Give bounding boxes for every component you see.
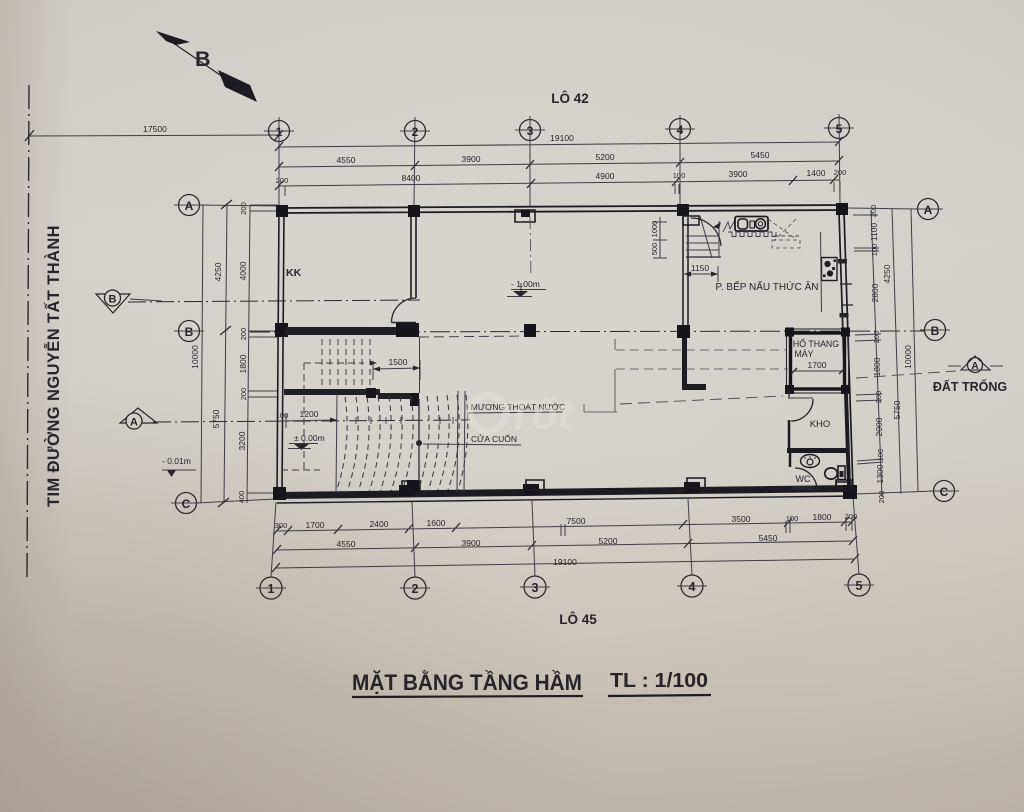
svg-text:1: 1 — [276, 125, 283, 139]
svg-text:WC: WC — [796, 474, 811, 484]
svg-text:5: 5 — [856, 579, 863, 593]
svg-text:5750: 5750 — [892, 400, 902, 419]
svg-text:300: 300 — [275, 521, 288, 530]
svg-text:2: 2 — [412, 582, 419, 596]
svg-text:HỐ THANG: HỐ THANG — [793, 338, 839, 349]
svg-text:400: 400 — [237, 491, 246, 504]
svg-text:2800: 2800 — [870, 283, 880, 302]
svg-text:4550: 4550 — [337, 155, 356, 165]
svg-text:A: A — [924, 203, 933, 217]
svg-text:A: A — [971, 361, 978, 372]
svg-text:1400: 1400 — [807, 168, 826, 178]
svg-text:200: 200 — [239, 388, 248, 401]
svg-text:MÁY: MÁY — [794, 349, 813, 359]
svg-text:17500: 17500 — [143, 124, 167, 134]
svg-text:4: 4 — [677, 123, 684, 137]
svg-text:1000: 1000 — [650, 221, 659, 238]
svg-text:1100: 1100 — [869, 223, 879, 242]
svg-text:100: 100 — [276, 411, 289, 420]
svg-text:200: 200 — [239, 202, 248, 215]
svg-text:4250: 4250 — [882, 264, 892, 283]
svg-text:1150: 1150 — [691, 263, 710, 273]
svg-text:1700: 1700 — [808, 360, 827, 370]
svg-text:7500: 7500 — [567, 516, 586, 526]
svg-text:KHO: KHO — [810, 419, 831, 430]
svg-text:3: 3 — [527, 124, 534, 138]
svg-text:1800: 1800 — [238, 354, 248, 373]
svg-text:B: B — [931, 324, 940, 338]
svg-text:19100: 19100 — [553, 557, 577, 567]
svg-text:2400: 2400 — [370, 519, 389, 529]
svg-text:1800: 1800 — [872, 357, 882, 376]
svg-text:A: A — [130, 417, 138, 429]
svg-text:3500: 3500 — [732, 514, 751, 524]
svg-text:5200: 5200 — [599, 536, 618, 546]
svg-text:- 0.01m: - 0.01m — [162, 456, 191, 466]
svg-text:200: 200 — [239, 328, 248, 341]
svg-text:C: C — [182, 497, 191, 511]
svg-text:5450: 5450 — [759, 533, 778, 543]
svg-text:4550: 4550 — [337, 539, 356, 549]
svg-text:TIM ĐƯỜNG NGUYỄN TẤT THÀNH: TIM ĐƯỜNG NGUYỄN TẤT THÀNH — [44, 225, 63, 507]
svg-text:3200: 3200 — [237, 431, 247, 450]
svg-text:- 1.00m: - 1.00m — [511, 279, 540, 289]
svg-text:2: 2 — [412, 125, 419, 139]
svg-text:200: 200 — [877, 491, 886, 504]
svg-text:KK: KK — [286, 267, 302, 279]
svg-text:1800: 1800 — [813, 512, 832, 522]
svg-text:1700: 1700 — [306, 520, 325, 530]
svg-text:ĐẤT TRỐNG: ĐẤT TRỐNG — [933, 379, 1007, 394]
svg-text:C: C — [940, 485, 949, 499]
svg-text:200: 200 — [869, 205, 878, 218]
svg-text:4250: 4250 — [213, 262, 223, 281]
svg-text:4900: 4900 — [596, 171, 615, 181]
svg-text:4000: 4000 — [238, 261, 248, 280]
svg-text:1300: 1300 — [875, 464, 885, 483]
svg-text:LÔ 45: LÔ 45 — [559, 612, 597, 627]
svg-text:5750: 5750 — [211, 409, 221, 428]
svg-text:3900: 3900 — [462, 154, 481, 164]
svg-text:4: 4 — [689, 580, 696, 594]
svg-text:P. BẾP NẤU THỨC ĂN: P. BẾP NẤU THỨC ĂN — [715, 280, 818, 293]
svg-text:100: 100 — [876, 449, 885, 462]
svg-text:500: 500 — [650, 243, 659, 256]
svg-text:MẶT BẰNG TẦNG HẦM: MẶT BẰNG TẦNG HẦM — [352, 670, 582, 695]
svg-text:3900: 3900 — [729, 169, 748, 179]
svg-text:± 0.00m: ± 0.00m — [294, 433, 325, 443]
svg-text:200: 200 — [845, 512, 858, 521]
svg-text:3: 3 — [532, 581, 539, 595]
svg-text:5200: 5200 — [596, 152, 615, 162]
svg-text:LÔ 42: LÔ 42 — [551, 91, 589, 106]
svg-text:100: 100 — [870, 244, 879, 257]
svg-text:5: 5 — [836, 122, 843, 136]
svg-text:5450: 5450 — [751, 150, 770, 160]
svg-text:1: 1 — [268, 582, 275, 596]
svg-text:8400: 8400 — [402, 173, 421, 183]
svg-text:200: 200 — [276, 176, 289, 185]
svg-text:200: 200 — [872, 331, 881, 344]
svg-text:1600: 1600 — [427, 518, 446, 528]
svg-text:B: B — [185, 325, 194, 339]
svg-text:200: 200 — [874, 391, 883, 404]
svg-text:1200: 1200 — [300, 409, 319, 419]
svg-text:1500: 1500 — [389, 357, 408, 367]
svg-text:3900: 3900 — [462, 538, 481, 548]
svg-text:10000: 10000 — [903, 345, 913, 369]
svg-text:2000: 2000 — [874, 417, 884, 436]
svg-text:TL : 1/100: TL : 1/100 — [610, 669, 708, 692]
svg-text:10000: 10000 — [190, 345, 200, 369]
svg-text:Tốt: Tốt — [505, 390, 574, 439]
svg-text:B: B — [109, 294, 117, 306]
svg-text:19100: 19100 — [550, 133, 574, 143]
svg-text:B: B — [195, 47, 211, 71]
svg-text:A: A — [185, 199, 194, 213]
svg-text:100: 100 — [786, 514, 799, 523]
